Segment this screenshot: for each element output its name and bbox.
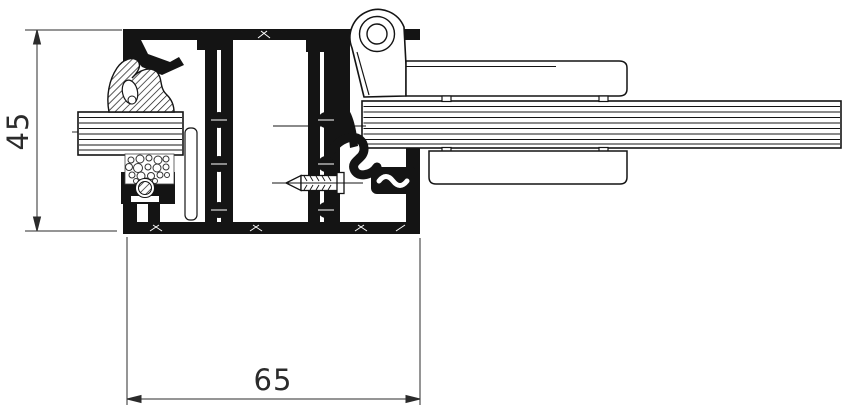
left-glazing [78, 59, 183, 198]
wedge-gasket-cavity-small [128, 96, 136, 104]
thermal-liner [185, 128, 197, 220]
bottom-tenon [148, 202, 160, 224]
arrow-up-icon [34, 30, 41, 44]
hinge-assembly [350, 9, 627, 97]
arrow-left-icon [127, 396, 141, 403]
profile-section-drawing: 45 65 [0, 0, 857, 412]
dimension-width-label: 65 [254, 363, 293, 397]
dimension-height-label: 45 [1, 112, 35, 151]
mullion-wall-b1 [308, 40, 320, 222]
top-rib-b [306, 40, 338, 52]
sandwich-panel-right [362, 101, 841, 148]
clamp-plate [429, 151, 627, 184]
gasket-grommet [139, 182, 152, 195]
hinge-pin [367, 24, 387, 44]
arrow-down-icon [34, 217, 41, 231]
technical-drawing-canvas: 45 65 [0, 0, 857, 412]
arrow-right-icon [406, 396, 420, 403]
mullion-wall-a2 [221, 40, 233, 222]
mullion-wall-a1 [205, 40, 217, 222]
frame-bottom-wall [123, 222, 420, 234]
dimension-width: 65 [127, 237, 420, 405]
